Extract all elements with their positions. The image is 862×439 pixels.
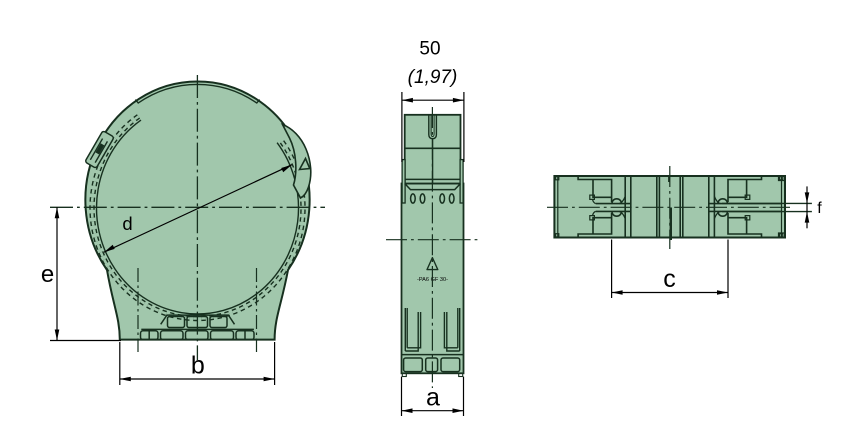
svg-text:a: a xyxy=(426,384,440,412)
svg-text:d: d xyxy=(122,213,132,234)
svg-text:c: c xyxy=(663,265,676,293)
svg-text:(1,97): (1,97) xyxy=(408,67,458,88)
svg-text:f: f xyxy=(817,200,822,217)
svg-text:50: 50 xyxy=(419,39,440,60)
svg-text:b: b xyxy=(191,352,205,380)
svg-text:e: e xyxy=(41,261,54,288)
